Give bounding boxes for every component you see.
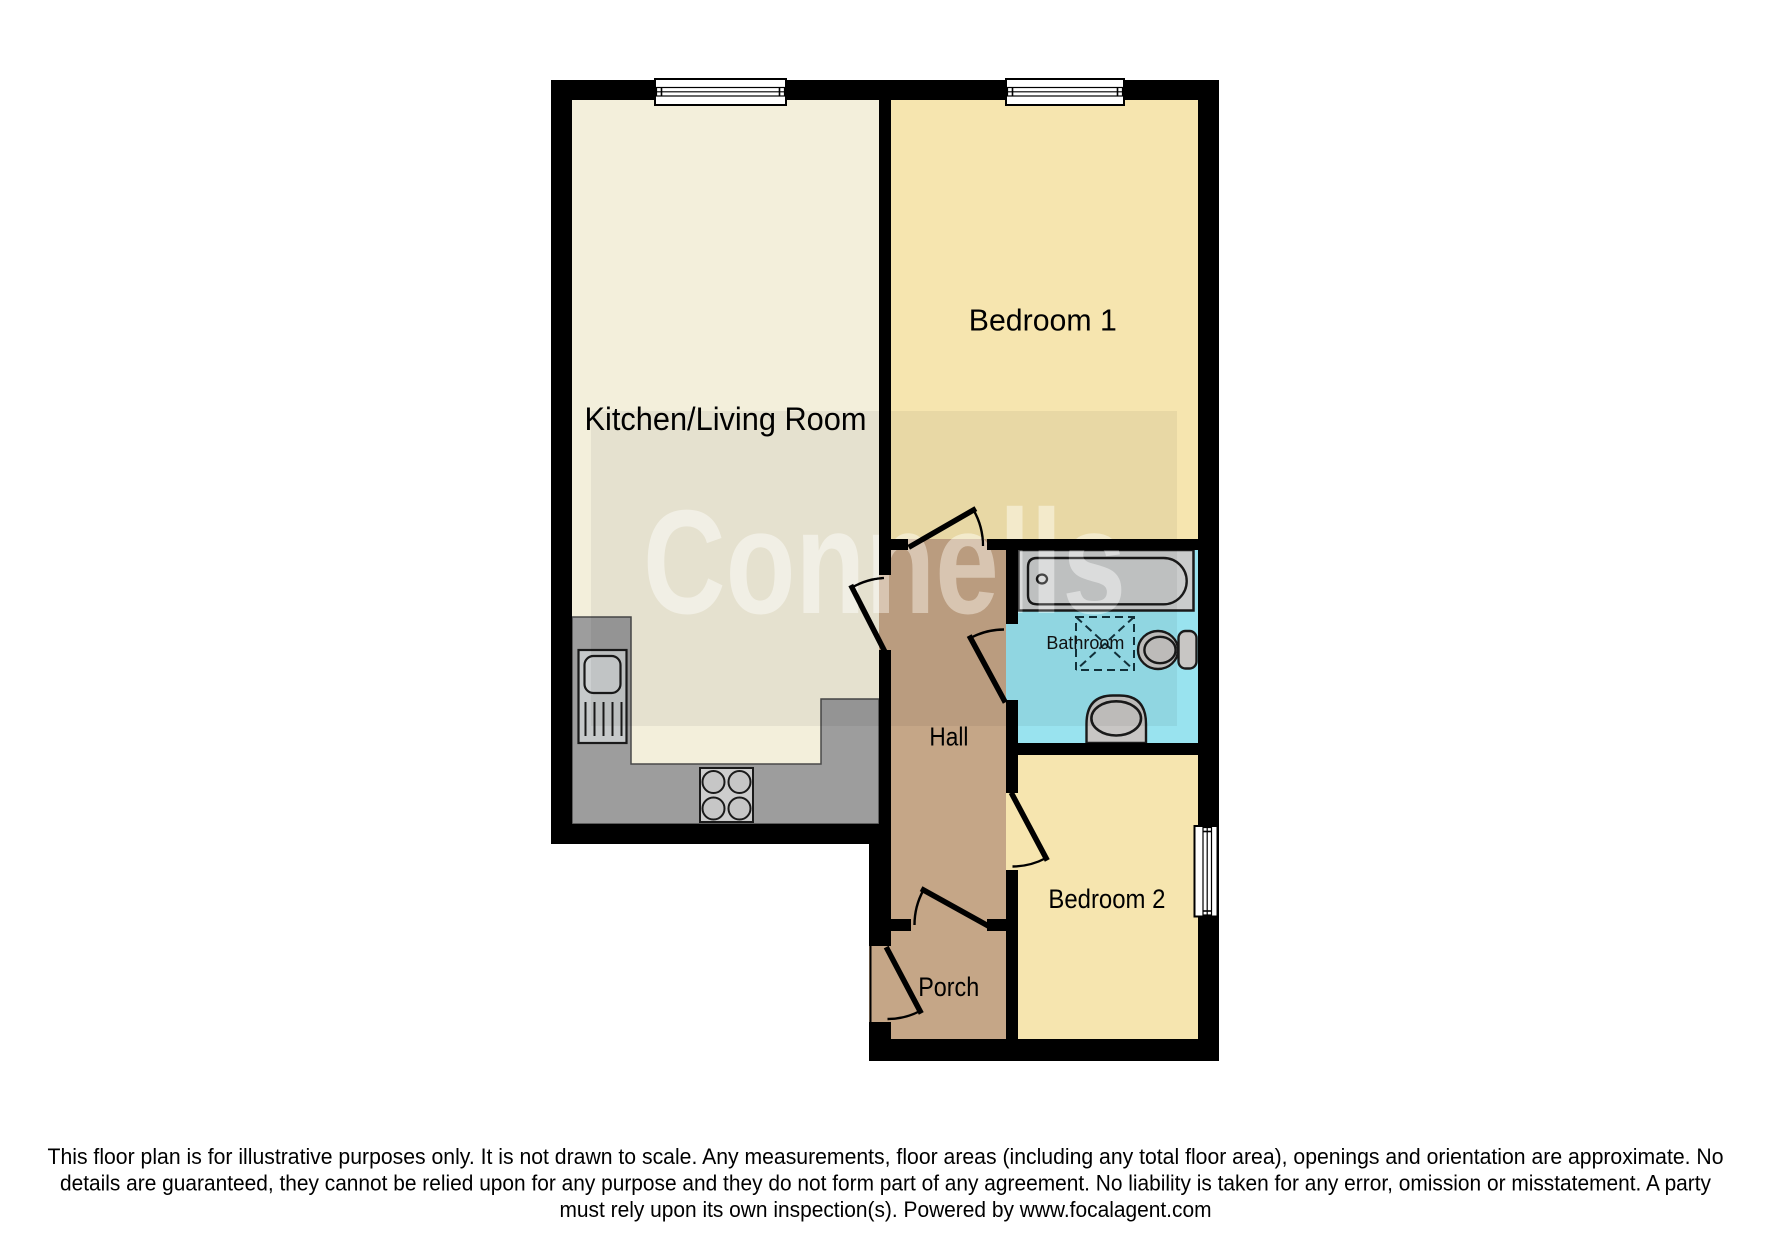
svg-text:Bedroom 1: Bedroom 1	[969, 303, 1117, 338]
svg-text:Hall: Hall	[929, 722, 968, 752]
svg-text:Bedroom 2: Bedroom 2	[1048, 884, 1165, 914]
svg-text:must rely upon its own inspect: must rely upon its own inspection(s). Po…	[560, 1197, 1212, 1222]
svg-text:This floor plan is for illustr: This floor plan is for illustrative purp…	[48, 1144, 1724, 1169]
svg-text:Connells: Connells	[643, 480, 1126, 645]
svg-text:Porch: Porch	[918, 972, 979, 1002]
svg-text:details are guaranteed, they c: details are guaranteed, they cannot be r…	[60, 1171, 1711, 1196]
svg-text:Kitchen/Living Room: Kitchen/Living Room	[585, 401, 867, 437]
